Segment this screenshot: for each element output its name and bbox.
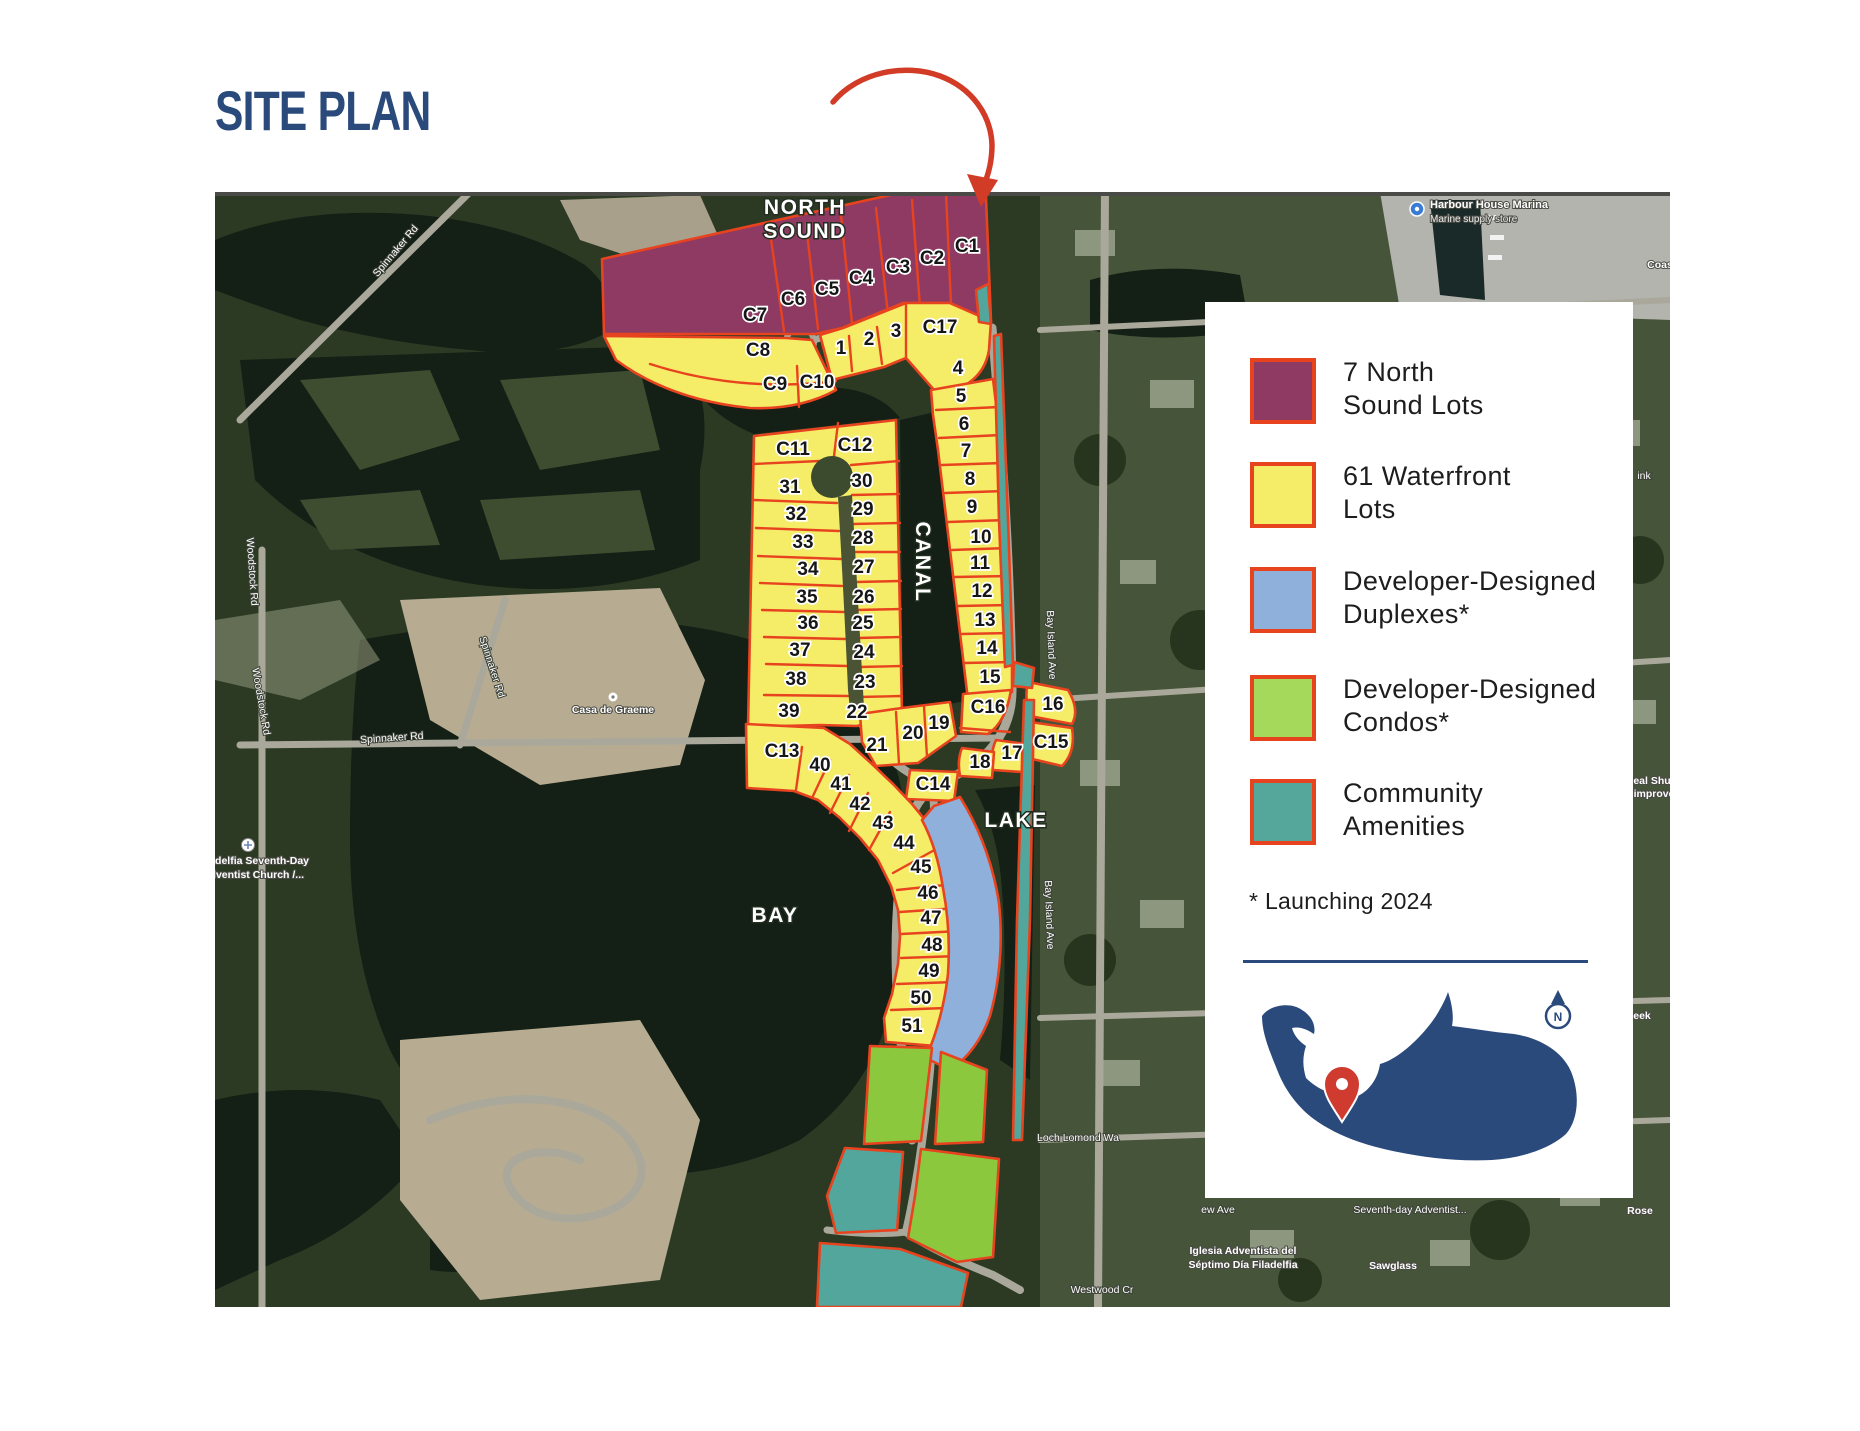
legend-label: Developer-DesignedDuplexes* (1343, 565, 1596, 631)
place-label: Loch Lomond Wa (1037, 1132, 1119, 1144)
lot-label-C11: C11 (776, 439, 810, 460)
legend-divider (1243, 960, 1588, 963)
lot-label-26: 26 (853, 587, 874, 608)
lot-label-27: 27 (853, 557, 874, 578)
duplex-swatch (1250, 567, 1316, 633)
legend-footnote: * Launching 2024 (1249, 888, 1433, 915)
lot-label-41: 41 (830, 774, 852, 795)
lot-label-40: 40 (809, 755, 830, 776)
legend-item-condos: Developer-DesignedCondos* (1250, 675, 1610, 741)
lot-label-19: 19 (928, 713, 949, 734)
lot-label-49: 49 (918, 961, 939, 982)
lot-label-C13: C13 (765, 741, 800, 762)
site-plan-page: SITE PLAN (0, 0, 1860, 1431)
lot-label-32: 32 (785, 504, 806, 525)
lot-label-20: 20 (902, 723, 923, 744)
legend-label: 7 NorthSound Lots (1343, 356, 1484, 422)
compass-n-label: N (1554, 1010, 1563, 1024)
lot-label-C3: C3 (886, 257, 910, 278)
lot-label-12: 12 (971, 581, 992, 602)
north-sound-swatch (1250, 358, 1316, 424)
place-label: Sawglass (1369, 1260, 1417, 1272)
lot-label-25: 25 (852, 613, 874, 634)
lot-label-45: 45 (910, 857, 932, 878)
legend-label: 61 WaterfrontLots (1343, 460, 1511, 526)
lot-label-48: 48 (921, 935, 942, 956)
lot-label-18: 18 (969, 752, 990, 773)
compass-icon: N (1546, 990, 1570, 1028)
lot-label-33: 33 (792, 532, 813, 553)
place-label: Iglesia Adventista del (1190, 1245, 1297, 1257)
lot-label-C1: C1 (955, 236, 980, 257)
legend-label: CommunityAmenities (1343, 777, 1483, 843)
lot-label-C5: C5 (815, 279, 840, 300)
lot-label-C16: C16 (971, 697, 1006, 718)
lot-label-35: 35 (796, 587, 818, 608)
place-label: improve (1634, 788, 1670, 800)
legend-item-duplexes: Developer-DesignedDuplexes* (1250, 567, 1610, 633)
lot-label-44: 44 (893, 833, 915, 854)
lot-label-22: 22 (846, 702, 867, 723)
lot-label-C14: C14 (916, 774, 951, 795)
place-label: ink (1637, 470, 1651, 482)
legend-item-waterfront: 61 WaterfrontLots (1250, 462, 1610, 528)
place-label: eal Shu (1633, 775, 1670, 787)
cul-de-sac-circle (811, 456, 853, 498)
lot-label-11: 11 (970, 553, 991, 574)
lot-label-5: 5 (956, 386, 967, 407)
lot-label-28: 28 (852, 528, 873, 549)
place-label: Filadelfia Seventh-Day (215, 855, 309, 867)
lot-label-9: 9 (967, 497, 978, 518)
lot-label-14: 14 (976, 638, 998, 659)
place-label: Bay Island Ave (1042, 880, 1056, 950)
region-label: SOUND (763, 220, 846, 243)
amenity-swatch (1250, 779, 1316, 845)
place-label: Séptimo Día Filadelfia (1188, 1259, 1297, 1271)
lot-label-6: 6 (959, 414, 970, 435)
lot-label-34: 34 (797, 559, 819, 580)
region-label: BAY (752, 904, 799, 927)
lot-label-C12: C12 (838, 435, 873, 456)
lot-label-42: 42 (849, 794, 870, 815)
place-label: Bay Island Ave (1044, 610, 1058, 680)
lot-label-C17: C17 (923, 317, 958, 338)
legend-panel: 7 NorthSound Lots 61 WaterfrontLots Deve… (1205, 302, 1633, 1198)
lot-label-3: 3 (891, 321, 902, 342)
lot-label-1: 1 (836, 338, 847, 359)
legend-item-amenities: CommunityAmenities (1250, 779, 1610, 845)
lot-label-C4: C4 (849, 268, 874, 289)
place-label: Westwood Cr (1071, 1284, 1134, 1296)
arrow-head-icon (967, 174, 998, 207)
lot-label-46: 46 (917, 883, 938, 904)
lot-label-C8: C8 (746, 340, 770, 361)
lot-label-15: 15 (979, 667, 1001, 688)
lot-label-47: 47 (920, 908, 941, 929)
place-label: Coas (1647, 259, 1670, 271)
lot-label-51: 51 (901, 1016, 923, 1037)
annotation-arrow (780, 58, 1030, 218)
lot-label-2: 2 (864, 329, 875, 350)
place-label: eek (1633, 1010, 1651, 1022)
lot-label-C7: C7 (743, 305, 767, 326)
place-label: Casa de Graeme (572, 704, 654, 716)
region-label: LAKE (984, 809, 1047, 832)
lot-label-30: 30 (851, 471, 872, 492)
lot-label-23: 23 (854, 672, 875, 693)
lot-label-C6: C6 (781, 289, 805, 310)
lot-label-31: 31 (779, 477, 801, 498)
place-label: Seventh-day Adventist... (1353, 1204, 1466, 1216)
place-label: Harbour House Marina (1430, 199, 1549, 211)
page-title: SITE PLAN (215, 78, 430, 143)
lot-label-43: 43 (872, 813, 893, 834)
condo-swatch (1250, 675, 1316, 741)
lot-label-39: 39 (778, 701, 799, 722)
region-label: CANAL (911, 522, 934, 603)
lot-label-17: 17 (1001, 743, 1022, 764)
lot-label-7: 7 (961, 441, 972, 462)
lot-label-C10: C10 (800, 372, 835, 393)
lot-label-38: 38 (785, 669, 806, 690)
lot-label-29: 29 (852, 499, 873, 520)
legend-item-north-sound: 7 NorthSound Lots (1250, 358, 1610, 424)
lot-label-C9: C9 (763, 374, 787, 395)
lot-label-21: 21 (866, 735, 888, 756)
arrow-curve (833, 70, 992, 187)
lot-label-36: 36 (797, 613, 818, 634)
place-label: Rose (1627, 1205, 1653, 1217)
place-label: ew Ave (1201, 1204, 1235, 1216)
lot-label-C2: C2 (920, 248, 944, 269)
lot-label-37: 37 (789, 640, 810, 661)
grand-cayman-silhouette (1262, 992, 1577, 1160)
lot-label-16: 16 (1042, 694, 1063, 715)
island-locator: N (1205, 978, 1633, 1198)
lot-label-4: 4 (953, 358, 964, 379)
place-label: Adventist Church /... (215, 869, 304, 881)
lot-label-50: 50 (910, 988, 931, 1009)
lot-label-24: 24 (853, 642, 875, 663)
waterfront-swatch (1250, 462, 1316, 528)
place-label: Marine supply store (1430, 214, 1518, 225)
lot-label-8: 8 (965, 469, 976, 490)
lot-label-10: 10 (970, 527, 991, 548)
legend-label: Developer-DesignedCondos* (1343, 673, 1596, 739)
lot-label-C15: C15 (1034, 732, 1069, 753)
lot-label-13: 13 (974, 610, 995, 631)
